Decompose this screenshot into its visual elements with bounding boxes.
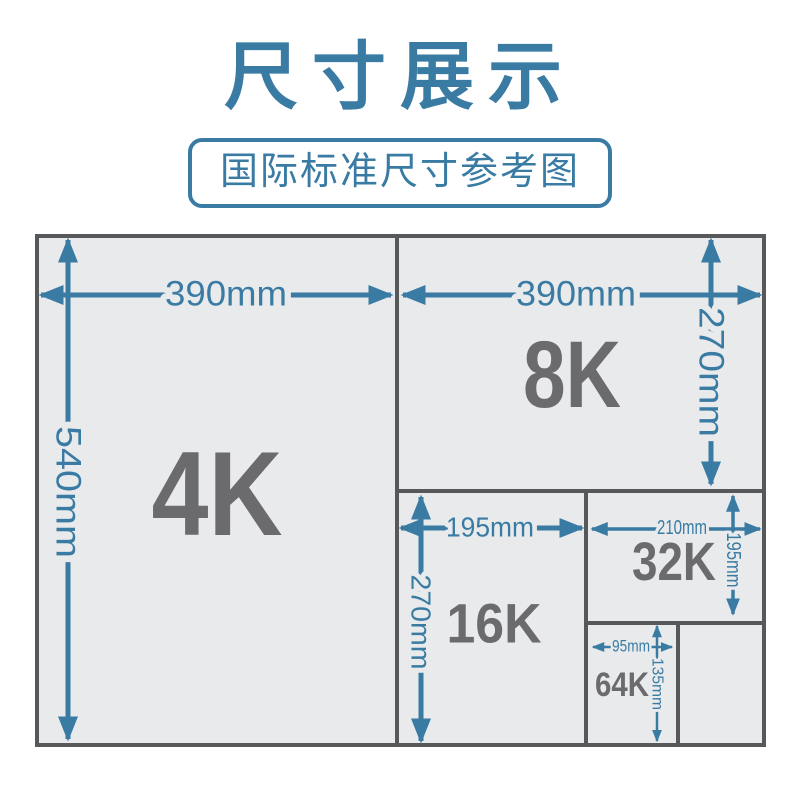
subtitle-text: 国际标准尺寸参考图 [220,151,580,193]
panel-8k-label: 8K [523,322,621,428]
dim-64k-height-label: 135mm [649,658,666,710]
dim-32k-height-label: 195mm [722,533,744,588]
dim-4k-width-label: 390mm [165,275,287,314]
page-title: 尺寸展示 [0,36,800,117]
dim-4k-height-label: 540mm [49,426,88,558]
panel-64k-label: 64K [595,666,649,704]
panel-4k-label: 4K [152,427,283,561]
dim-64k-width-label: 95mm [612,637,650,656]
panel-32k-label: 32K [632,532,716,592]
panel-16k-label: 16K [447,592,542,655]
size-diagram: 4K 390mm 540mm 8K 390mm 270mm 16K 195mm … [35,234,766,747]
dim-16k-height-label: 270mm [406,575,437,670]
dim-32k-width-label: 210mm [657,517,707,539]
subtitle-box: 国际标准尺寸参考图 [188,138,612,208]
product-size-infographic: 尺寸展示 国际标准尺寸参考图 4K 390mm 540mm 8K [0,0,800,800]
dim-8k-height-label: 270mm [692,307,731,437]
dim-8k-width-label: 390mm [516,275,636,314]
dim-16k-width-label: 195mm [446,512,534,543]
